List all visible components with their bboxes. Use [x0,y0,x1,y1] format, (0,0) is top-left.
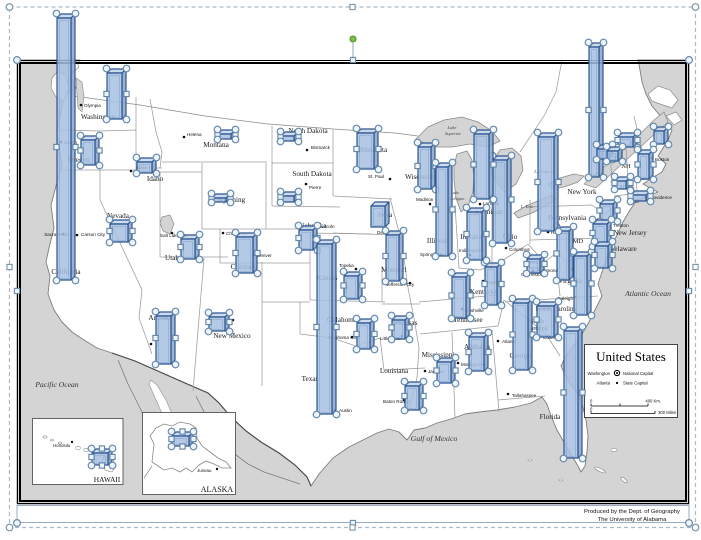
svg-text:National Capital: National Capital [623,371,653,376]
svg-text:ALASKA: ALASKA [201,485,234,494]
svg-text:New York: New York [567,188,597,196]
svg-text:Louisiana: Louisiana [380,367,409,375]
svg-text:Tallahassee: Tallahassee [512,393,537,398]
svg-text:Lincoln: Lincoln [320,224,335,229]
svg-text:Bismarck: Bismarck [311,145,331,150]
svg-text:Washington: Washington [587,371,610,376]
svg-text:L. Erie: L. Erie [520,204,534,209]
svg-text:Texas: Texas [302,375,319,383]
svg-text:State Capital: State Capital [623,381,648,386]
svg-text:Madison: Madison [416,197,434,202]
svg-text:South Dakota: South Dakota [292,170,332,178]
svg-text:Honolulu: Honolulu [53,443,71,448]
svg-text:Atlantic Ocean: Atlantic Ocean [624,289,671,298]
svg-text:New Jersey: New Jersey [613,229,647,237]
svg-text:300 Miles: 300 Miles [658,410,676,415]
svg-text:Topeka: Topeka [339,263,354,268]
svg-text:HAWAII: HAWAII [94,475,121,484]
svg-text:Lake: Lake [447,125,457,130]
svg-text:MD: MD [573,238,584,245]
svg-text:400 Km.: 400 Km. [645,399,661,404]
svg-text:Produced by the Dept. of Geogr: Produced by the Dept. of Geography [584,509,680,515]
svg-text:Boston: Boston [655,157,670,162]
svg-text:Helena: Helena [187,132,202,137]
svg-text:Carson City: Carson City [81,232,106,237]
svg-text:Juneau: Juneau [197,468,212,473]
svg-text:Pacific Ocean: Pacific Ocean [34,380,78,389]
svg-text:Superior: Superior [445,131,461,136]
svg-text:Florida: Florida [540,413,562,421]
svg-text:Atlanta: Atlanta [597,381,611,386]
svg-text:Gulf of Mexico: Gulf of Mexico [411,434,458,443]
svg-text:Olympia: Olympia [84,103,101,108]
svg-text:The University of Alabama: The University of Alabama [598,517,667,523]
svg-text:United States: United States [596,349,666,364]
svg-text:Austin: Austin [339,408,352,413]
svg-text:Pierre: Pierre [309,185,322,190]
svg-text:St. Paul: St. Paul [368,174,384,179]
